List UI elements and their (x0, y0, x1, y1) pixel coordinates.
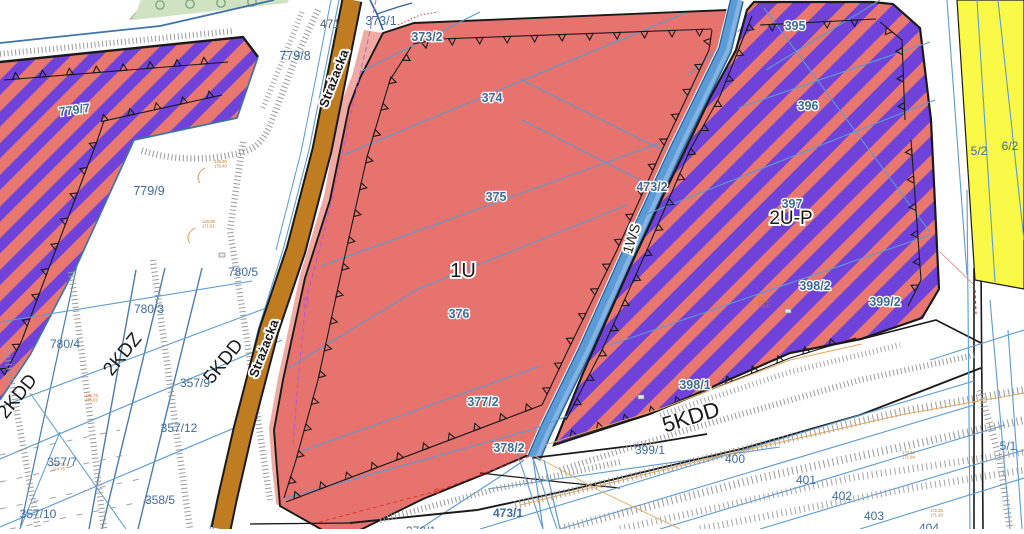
svg-text:357/12: 357/12 (161, 421, 198, 435)
svg-text:399/1: 399/1 (635, 443, 665, 457)
svg-text:398/2: 398/2 (799, 279, 830, 293)
svg-text:402: 402 (832, 489, 852, 503)
svg-text:357/10: 357/10 (20, 507, 57, 521)
svg-text:471: 471 (320, 17, 340, 31)
svg-text:376: 376 (449, 307, 470, 321)
svg-text:399/2: 399/2 (869, 295, 900, 309)
svg-text:373/1: 373/1 (365, 14, 396, 28)
svg-text:398/1: 398/1 (679, 378, 710, 392)
svg-text:780/4: 780/4 (50, 337, 80, 351)
svg-text:395: 395 (785, 19, 806, 33)
svg-text:358/5: 358/5 (145, 493, 175, 507)
svg-text:175.83: 175.83 (85, 398, 98, 403)
svg-text:779/9: 779/9 (133, 184, 164, 198)
svg-text:403: 403 (864, 509, 884, 523)
svg-text:6/2: 6/2 (1002, 139, 1019, 153)
svg-text:473/2: 473/2 (636, 180, 667, 194)
svg-text:396: 396 (798, 99, 819, 113)
svg-text:377/2: 377/2 (467, 395, 498, 409)
svg-text:378/2: 378/2 (493, 441, 524, 455)
svg-text:780/3: 780/3 (134, 302, 164, 316)
svg-text:171.84: 171.84 (902, 455, 915, 460)
svg-text:176.42: 176.42 (758, 304, 771, 309)
svg-text:401: 401 (796, 473, 816, 487)
svg-text:2U-P: 2U-P (769, 208, 812, 229)
svg-text:171.10: 171.10 (930, 513, 943, 518)
svg-text:473/1: 473/1 (493, 506, 523, 520)
svg-text:779/8: 779/8 (279, 49, 310, 63)
svg-text:378/1: 378/1 (406, 524, 436, 529)
svg-text:374: 374 (482, 91, 503, 105)
svg-text:357/7: 357/7 (47, 455, 77, 469)
svg-text:404: 404 (919, 521, 939, 529)
svg-text:5/2: 5/2 (971, 144, 988, 158)
svg-text:373/2: 373/2 (411, 30, 442, 44)
svg-text:400: 400 (725, 452, 745, 466)
svg-text:5/1: 5/1 (1000, 439, 1017, 453)
svg-text:176.40: 176.40 (214, 164, 227, 169)
svg-text:375: 375 (486, 190, 507, 204)
svg-text:1U: 1U (450, 260, 476, 282)
svg-text:171.81: 171.81 (202, 224, 215, 229)
svg-text:780/5: 780/5 (228, 265, 258, 279)
